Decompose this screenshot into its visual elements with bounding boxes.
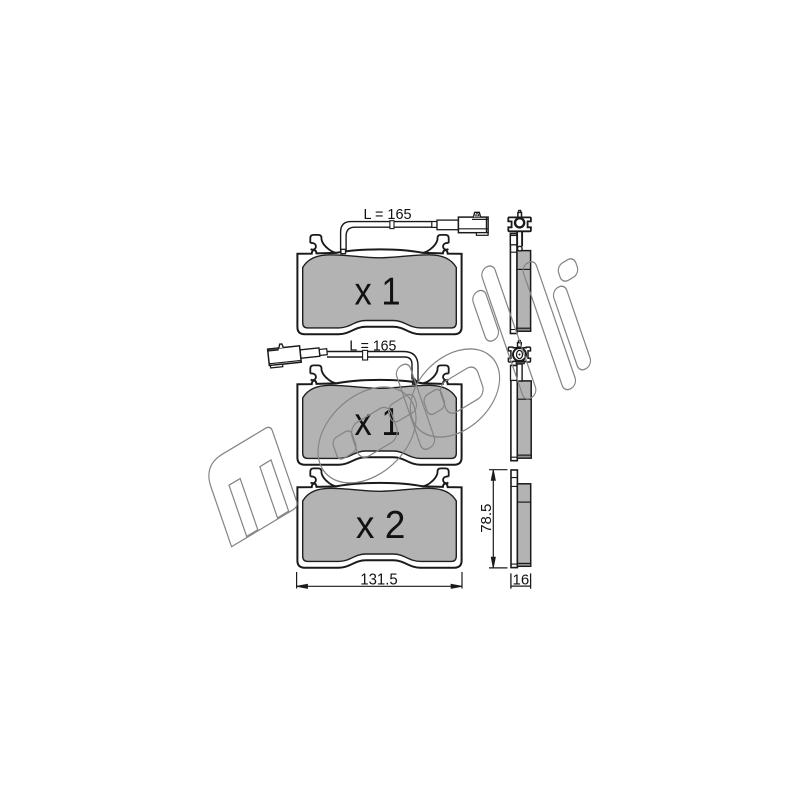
svg-text:x 2: x 2 <box>356 504 406 547</box>
svg-text:x 1: x 1 <box>355 401 401 444</box>
svg-text:L = 165: L = 165 <box>364 206 412 223</box>
svg-text:78.5: 78.5 <box>478 504 495 533</box>
svg-text:L = 165: L = 165 <box>349 338 396 355</box>
svg-text:x 1: x 1 <box>355 271 401 314</box>
svg-text:16: 16 <box>513 572 530 589</box>
svg-text:131.5: 131.5 <box>360 572 398 589</box>
